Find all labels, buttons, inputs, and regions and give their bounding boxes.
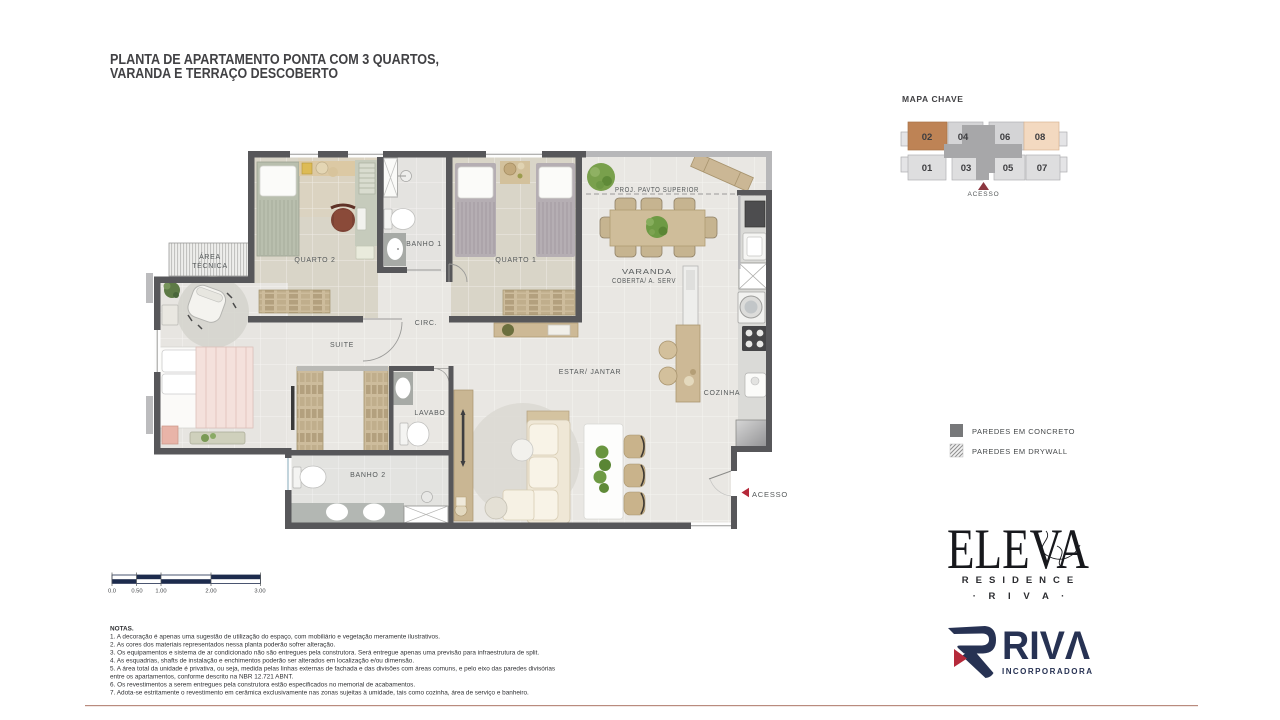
- svg-text:INCORPORADORA: INCORPORADORA: [1002, 667, 1092, 676]
- svg-text:ACESSO: ACESSO: [968, 191, 1000, 198]
- svg-text:· R I V A ·: · R I V A ·: [973, 591, 1070, 602]
- svg-text:4. As esquadrias, shafts de in: 4. As esquadrias, shafts de instalação e…: [110, 658, 414, 665]
- svg-text:LAVABO: LAVABO: [414, 410, 445, 417]
- svg-text:3.00: 3.00: [254, 589, 265, 595]
- svg-text:0.0: 0.0: [108, 589, 116, 595]
- svg-text:QUARTO 1: QUARTO 1: [495, 257, 536, 264]
- svg-text:entre os apartamentos, conform: entre os apartamentos, conforme descrito…: [110, 674, 294, 681]
- svg-text:05: 05: [1003, 163, 1014, 174]
- svg-text:RESIDENCE: RESIDENCE: [962, 575, 1080, 586]
- svg-text:VARANDA E TERRAÇO DESCOBERTO: VARANDA E TERRAÇO DESCOBERTO: [110, 66, 338, 82]
- svg-text:MAPA CHAVE: MAPA CHAVE: [902, 94, 964, 104]
- svg-text:3. Os equipamentos e sistema d: 3. Os equipamentos e sistema de ar condi…: [110, 650, 539, 657]
- svg-text:2.00: 2.00: [205, 589, 216, 595]
- svg-text:04: 04: [958, 132, 969, 143]
- svg-text:SUITE: SUITE: [330, 342, 354, 349]
- svg-text:TÉCNICA: TÉCNICA: [192, 261, 228, 270]
- svg-text:QUARTO 2: QUARTO 2: [294, 257, 335, 264]
- svg-text:0.50: 0.50: [131, 589, 142, 595]
- svg-text:6. Os revestimentos a serem en: 6. Os revestimentos a serem entregues pe…: [110, 682, 415, 689]
- svg-text:ACESSO: ACESSO: [752, 490, 788, 499]
- svg-text:1. A decoração é apenas uma su: 1. A decoração é apenas uma sugestão de …: [110, 634, 440, 641]
- svg-text:VARANDA: VARANDA: [622, 269, 672, 276]
- svg-text:BANHO 2: BANHO 2: [350, 472, 386, 479]
- svg-text:PAREDES EM DRYWALL: PAREDES EM DRYWALL: [972, 447, 1068, 456]
- svg-text:06: 06: [1000, 132, 1011, 143]
- svg-text:2. As cores dos materiais repr: 2. As cores dos materiais representados …: [110, 642, 335, 649]
- svg-text:PROJ. PAVTO SUPERIOR: PROJ. PAVTO SUPERIOR: [615, 187, 699, 194]
- svg-text:1.00: 1.00: [155, 589, 166, 595]
- svg-text:02: 02: [922, 132, 933, 143]
- svg-text:RIVΛ: RIVΛ: [1002, 624, 1090, 668]
- svg-text:ÁREA: ÁREA: [199, 252, 221, 261]
- svg-text:7. Adota-se estritamente o rev: 7. Adota-se estritamente o revestimento …: [110, 690, 529, 697]
- svg-text:PAREDES EM CONCRETO: PAREDES EM CONCRETO: [972, 427, 1075, 436]
- svg-text:07: 07: [1037, 163, 1048, 174]
- svg-text:01: 01: [922, 163, 933, 174]
- svg-text:NOTAS.: NOTAS.: [110, 626, 134, 633]
- svg-text:COBERTA/ A. SERV: COBERTA/ A. SERV: [612, 278, 676, 285]
- svg-text:5. A área total da unidade é p: 5. A área total da unidade é privativa, …: [110, 666, 555, 673]
- svg-text:03: 03: [961, 163, 972, 174]
- svg-text:CIRC.: CIRC.: [415, 320, 438, 327]
- svg-text:ESTAR/ JANTAR: ESTAR/ JANTAR: [559, 369, 622, 376]
- svg-text:COZINHA: COZINHA: [704, 390, 740, 397]
- svg-text:08: 08: [1035, 132, 1046, 143]
- svg-text:ELEVA: ELEVA: [947, 518, 1089, 581]
- svg-text:BANHO 1: BANHO 1: [406, 241, 442, 248]
